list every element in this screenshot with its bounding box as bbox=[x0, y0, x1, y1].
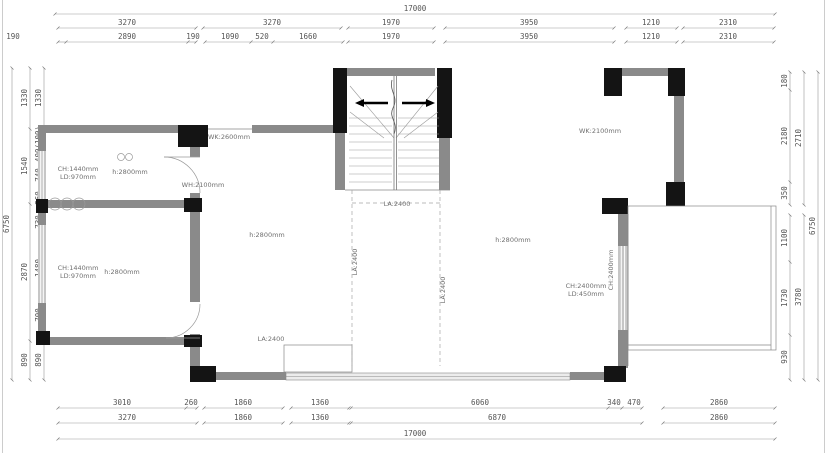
dim-label: 3780 bbox=[794, 287, 803, 306]
column bbox=[36, 331, 50, 345]
dim-label: 350 bbox=[780, 186, 789, 200]
dim-label: 1970 bbox=[382, 18, 401, 27]
dim-label: 3010 bbox=[113, 398, 132, 407]
column bbox=[36, 199, 48, 213]
wall bbox=[252, 125, 336, 133]
dim-label: 470 bbox=[627, 398, 641, 407]
dim-left-overall: 6750 bbox=[2, 214, 11, 233]
dimension-chain-bottom: 3010 260 1860 1360 6060 340 470 2860 327… bbox=[58, 398, 775, 439]
column bbox=[666, 182, 685, 206]
dim-label: 1330 bbox=[34, 88, 43, 107]
floorplan-canvas: 17000 3270 3270 1970 3950 1210 2310 190 … bbox=[0, 0, 828, 453]
room-height-note: h:2800mm bbox=[495, 236, 531, 244]
dim-label: 1360 bbox=[311, 398, 330, 407]
dim-label: 1860 bbox=[234, 413, 253, 422]
dim-label: 930 bbox=[780, 350, 789, 364]
bay-window-frame bbox=[628, 206, 776, 350]
dim-label: 1970 bbox=[382, 32, 401, 41]
door-swing bbox=[166, 304, 200, 338]
void-note: LA:2400 bbox=[258, 335, 285, 343]
dim-label: 180 bbox=[780, 74, 789, 88]
wall bbox=[190, 212, 200, 302]
dim-label: 190 bbox=[186, 32, 200, 41]
void-note: LA:2400 bbox=[384, 200, 411, 208]
wall bbox=[190, 147, 200, 157]
window-note: CH:2400mm bbox=[566, 282, 607, 290]
column bbox=[604, 366, 626, 382]
window-note: LD:450mm bbox=[568, 290, 604, 298]
dim-right-overall: 6750 bbox=[808, 216, 817, 235]
dim-label: 2180 bbox=[780, 126, 789, 145]
dim-label: 1330 bbox=[20, 88, 29, 107]
column bbox=[604, 68, 622, 96]
dimension-chain-top: 17000 3270 3270 1970 3950 1210 2310 190 … bbox=[6, 4, 775, 42]
wall bbox=[38, 213, 46, 225]
column bbox=[437, 68, 452, 138]
dim-label: 6060 bbox=[471, 398, 490, 407]
dim-label: 1660 bbox=[299, 32, 318, 41]
dim-label: 3950 bbox=[520, 32, 539, 41]
dimension-chain-right: 180 2180 350 1100 1730 930 2710 3780 675… bbox=[780, 72, 818, 380]
wall bbox=[570, 372, 604, 380]
window-note: CH:2400mm bbox=[607, 250, 615, 291]
dim-label: 3270 bbox=[118, 413, 137, 422]
wall bbox=[618, 214, 628, 246]
room-height-note: h:2800mm bbox=[104, 268, 140, 276]
dim-label: 3950 bbox=[520, 18, 539, 27]
dim-label: 1730 bbox=[780, 288, 789, 307]
column bbox=[190, 366, 216, 382]
column bbox=[178, 125, 208, 147]
window-note: LD:970mm bbox=[60, 173, 96, 181]
ceiling-light-icon bbox=[118, 154, 133, 161]
void-note: LA:2400 bbox=[351, 249, 359, 276]
dim-label: 3270 bbox=[118, 18, 137, 27]
wall bbox=[618, 330, 628, 368]
column bbox=[333, 68, 347, 133]
wall bbox=[335, 133, 345, 190]
window-note: LD:970mm bbox=[60, 272, 96, 280]
entry-cabinet bbox=[284, 345, 352, 372]
dim-label: 1100 bbox=[780, 228, 789, 247]
dim-label: 890 bbox=[34, 353, 43, 367]
window bbox=[38, 151, 46, 199]
window bbox=[38, 225, 46, 303]
floorplan-screenshot: 17000 3270 3270 1970 3950 1210 2310 190 … bbox=[0, 0, 828, 453]
void-note: LA:2400 bbox=[439, 277, 447, 304]
column bbox=[184, 335, 202, 347]
dim-label: 1540 bbox=[20, 156, 29, 175]
dim-label: 2310 bbox=[719, 18, 738, 27]
window-sill bbox=[286, 373, 570, 380]
stair-break-line bbox=[391, 80, 395, 134]
dim-label: 1210 bbox=[642, 32, 661, 41]
dim-label: 1360 bbox=[311, 413, 330, 422]
dim-label: 6870 bbox=[488, 413, 507, 422]
dim-label: 190 bbox=[6, 32, 20, 41]
window-note: CH:1440mm bbox=[58, 165, 99, 173]
wall bbox=[46, 200, 184, 208]
staircase bbox=[349, 76, 439, 190]
column bbox=[184, 198, 202, 212]
wall bbox=[38, 303, 46, 331]
dim-top-overall: 17000 bbox=[404, 4, 427, 13]
floor-plan: CH:1440mm LD:970mm CH:1440mm LD:970mm h:… bbox=[36, 68, 776, 382]
wall bbox=[622, 68, 670, 76]
wall bbox=[674, 96, 684, 182]
dim-label: 3270 bbox=[263, 18, 282, 27]
dim-label: 2860 bbox=[710, 398, 729, 407]
column bbox=[602, 198, 628, 214]
dim-label: 890 bbox=[20, 353, 29, 367]
dim-label: 1860 bbox=[234, 398, 253, 407]
dim-label: 340 bbox=[607, 398, 621, 407]
window-note: CH:1440mm bbox=[58, 264, 99, 272]
beam-note: WK:2100mm bbox=[579, 127, 621, 135]
dim-label: 2710 bbox=[794, 128, 803, 147]
wall bbox=[439, 138, 450, 190]
beam-note: WK:2600mm bbox=[208, 133, 250, 141]
dim-label: 2870 bbox=[20, 262, 29, 281]
room-height-note: h:2800mm bbox=[112, 168, 148, 176]
room-height-note: h:2800mm bbox=[249, 231, 285, 239]
wall bbox=[216, 372, 286, 380]
dim-label: 1090 bbox=[221, 32, 240, 41]
dim-label: 260 bbox=[184, 398, 198, 407]
dim-label: 2890 bbox=[118, 32, 137, 41]
dim-bottom-overall: 17000 bbox=[404, 429, 427, 438]
wall bbox=[38, 337, 186, 345]
window bbox=[618, 246, 628, 330]
beam-note: WH:2100mm bbox=[182, 181, 225, 189]
column bbox=[668, 68, 685, 96]
wall bbox=[347, 68, 435, 76]
dim-label: 2310 bbox=[719, 32, 738, 41]
dim-label: 520 bbox=[255, 32, 269, 41]
wall bbox=[38, 133, 46, 151]
dim-label: 1210 bbox=[642, 18, 661, 27]
dim-label: 2860 bbox=[710, 413, 729, 422]
